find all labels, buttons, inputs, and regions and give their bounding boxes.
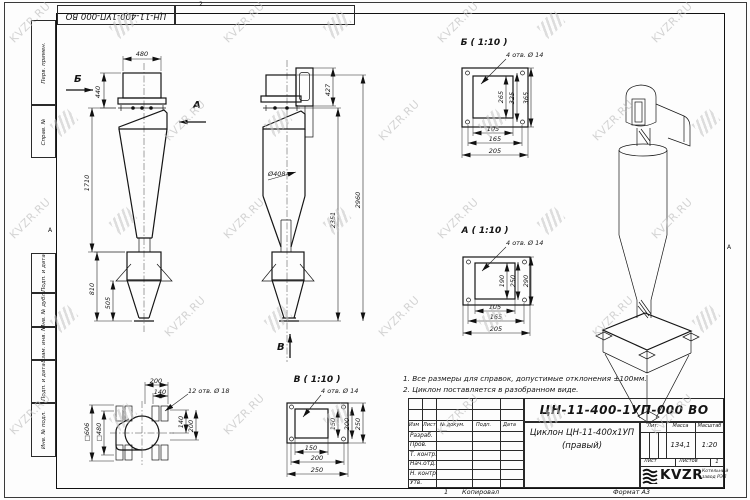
left-box-label: Инв. № дубл. [41, 291, 47, 329]
left-box-podp-data-1: Подп. и дата [31, 253, 56, 293]
zone-label-top: 2 [199, 2, 203, 9]
sheet-label: Лист [644, 459, 657, 465]
row-utv: Утв. [410, 480, 422, 486]
left-box-sprav-no: Справ. № [31, 105, 56, 158]
left-box-label: Взам. инв. № [41, 325, 47, 362]
row-prov: Пров. [410, 442, 427, 448]
col-list: Лист [423, 423, 436, 429]
kvzr-logo-icon [642, 468, 658, 484]
lit-label: Лит. [640, 424, 666, 430]
left-box-label: Подп. и дата [41, 363, 47, 400]
row-tkontr: Т. контр. [410, 452, 437, 458]
row-razrab: Разраб. [410, 433, 433, 439]
row-nachotd: Нач.отд. [410, 461, 436, 467]
col-podp: Подп. [476, 423, 491, 429]
col-izm: Изм [409, 423, 419, 429]
kvzr-brand: KVZR [660, 468, 703, 483]
sheets-label: Листов [679, 459, 698, 465]
scale-label: Масштаб [695, 424, 724, 430]
zone-label-left: А [48, 228, 52, 235]
zone-label-bottom: 1 [444, 489, 448, 496]
mass-label: Масса [666, 424, 695, 430]
note-2: 2. Циклон поставляется в разобранном вид… [403, 386, 579, 394]
left-box-inv-dubl: Инв. № дубл. [31, 293, 56, 327]
left-box-vzam-inv: Взам. инв. № [31, 327, 56, 360]
left-box-label: Подп. и дата [41, 254, 47, 291]
note-1: 1. Все размеры для справок, допустимые о… [403, 375, 647, 383]
zone-label-right: А [727, 245, 731, 252]
top-docnumber-box: ЦН-11-400-1УП-000 ВО [57, 5, 175, 25]
mass-value: 134,1 [666, 442, 695, 450]
scale-value: 1:20 [695, 442, 724, 450]
part-name-line1: Циклон ЦН-11-400х1УП [524, 429, 640, 438]
left-box-label: Справ. № [41, 118, 47, 145]
drawing-sheet: 480 440 1710 810 505 Б А [0, 0, 750, 500]
col-docum: № докум. [440, 423, 465, 429]
format-label: Формат А3 [613, 489, 650, 496]
part-name-line2: (правый) [524, 442, 640, 451]
left-box-inv-podl: Инв. № подл. [31, 403, 56, 457]
top-docnumber: ЦН-11-400-1УП-000 ВО [60, 10, 172, 19]
left-box-label: Инв. № подл. [41, 411, 47, 449]
left-box-label: Перв. примен. [41, 42, 47, 83]
left-box-podp-data-2: Подп. и дата [31, 360, 56, 403]
company-name-2: завод РЭП [702, 476, 726, 481]
copied-label: Копировал [462, 489, 499, 496]
row-nkontr: Н. контр. [410, 471, 438, 477]
left-box-perv-primen: Перв. примен. [31, 20, 56, 105]
kvzr-logo: KVZR Котельный завод РЭП [642, 467, 722, 486]
docnumber-text: ЦН-11-400-1УП-000 ВО [524, 404, 724, 417]
col-data: Дата [503, 423, 516, 429]
sheets-value: 1 [710, 459, 724, 465]
